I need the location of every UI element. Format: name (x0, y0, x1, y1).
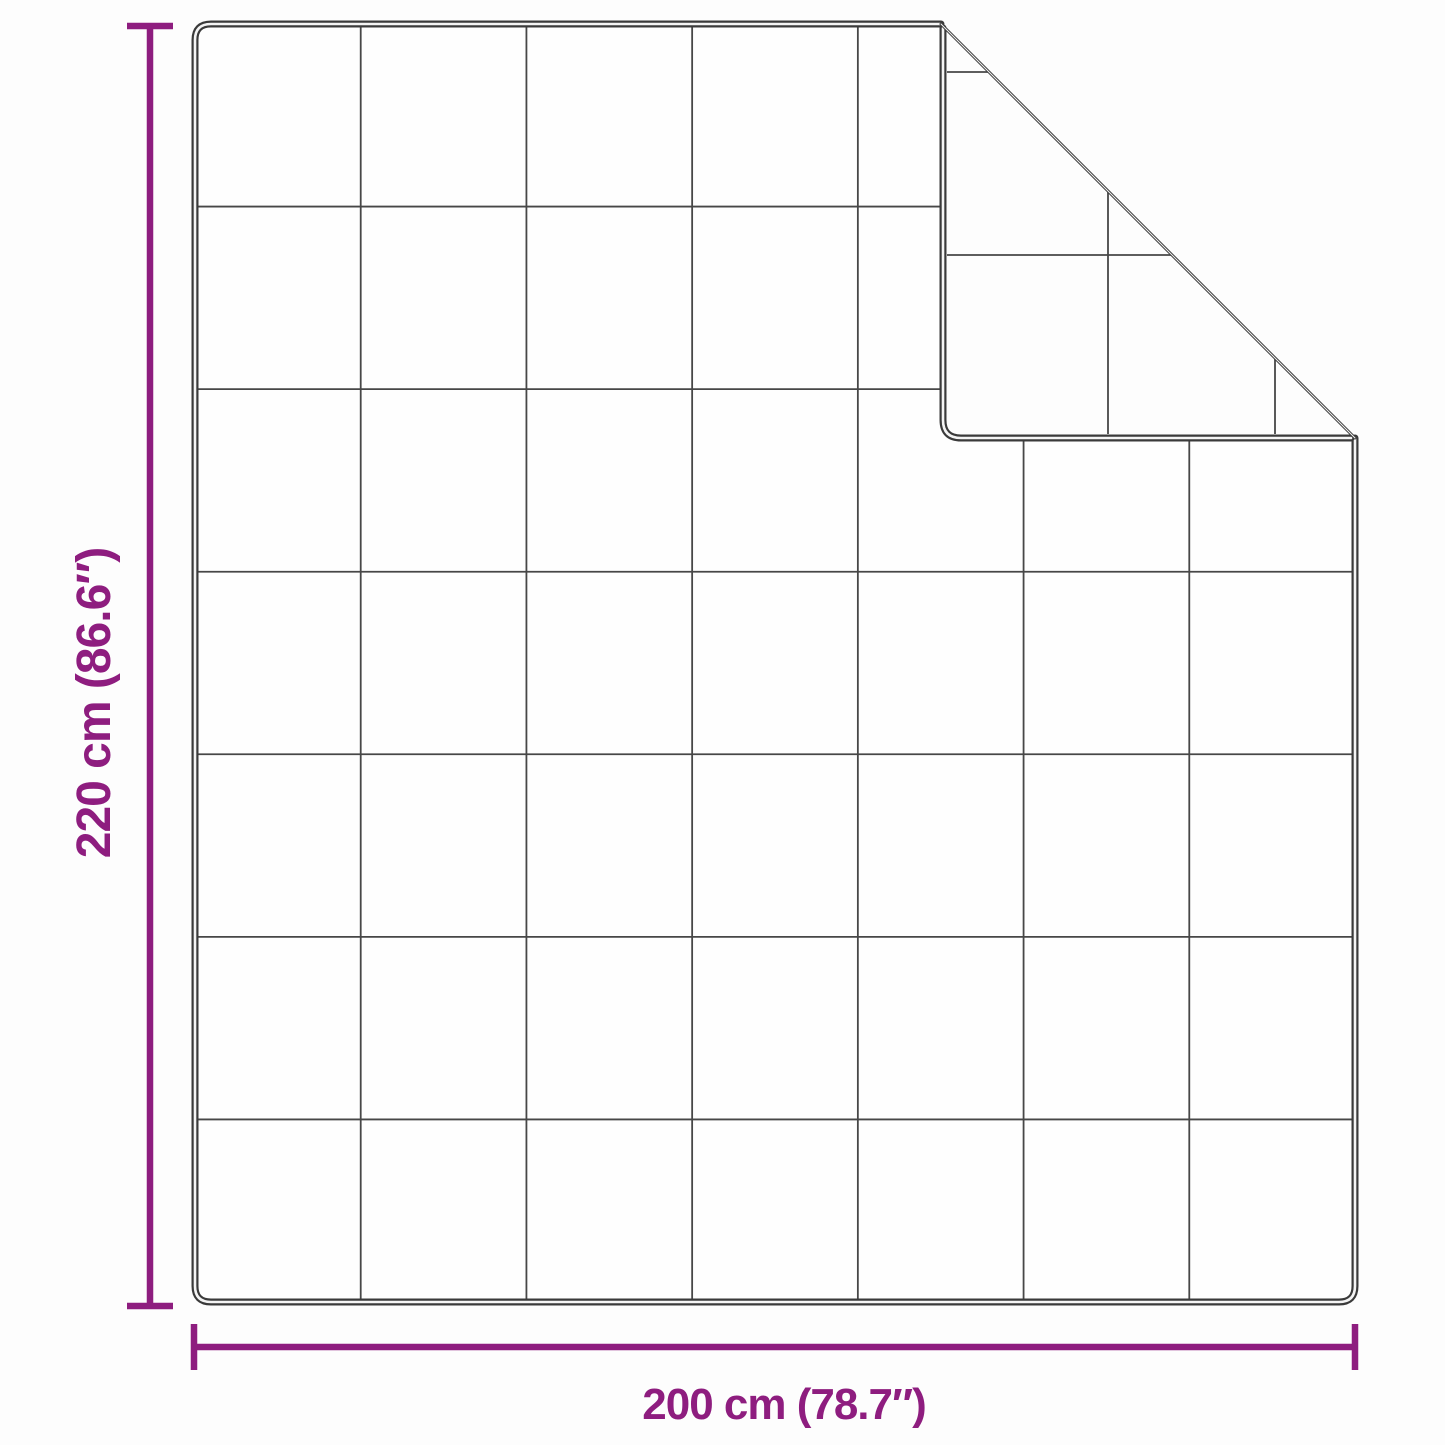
blanket-body (195, 24, 1355, 1302)
diagram-canvas: 220 cm (86.6″) 200 cm (78.7″) (0, 0, 1445, 1445)
blanket-dimension-diagram: 220 cm (86.6″) 200 cm (78.7″) (0, 0, 1445, 1445)
width-dimension-line: 200 cm (78.7″) (194, 1324, 1355, 1429)
height-dimension-line: 220 cm (86.6″) (68, 26, 173, 1306)
width-dimension-label: 200 cm (78.7″) (642, 1380, 925, 1429)
height-dimension-label: 220 cm (86.6″) (68, 548, 121, 859)
